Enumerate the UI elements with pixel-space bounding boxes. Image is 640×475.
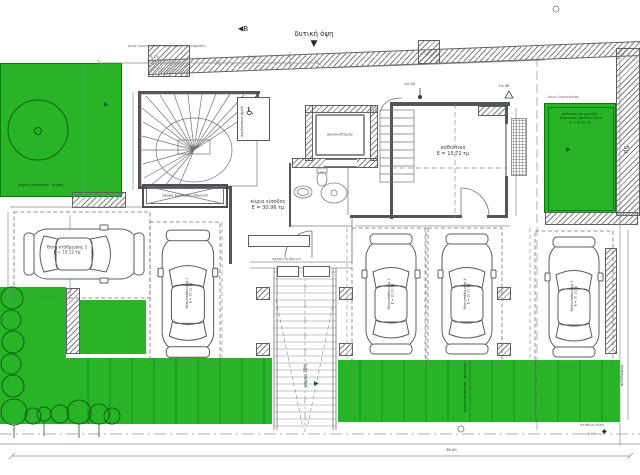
parking-space-3-area: Ε = 10.12 τμ [391, 268, 395, 320]
section-arrow-icon: ▶ [238, 25, 243, 33]
floor-plan-canvas: δυτική όψη ▼ ▶B όριο ιδιοκτησίας - υφιστ… [0, 0, 640, 475]
living-room-label: καθιστικό Ε = 15.72 τμ [415, 145, 491, 157]
planting-arrow-icon: ▶ [566, 146, 571, 153]
level-zero-label: ±0.00 [404, 82, 415, 86]
walkway-lines [250, 262, 352, 268]
top-boundary-note: όριο ιδιοκτησίας - υφιστάμενη περίφραξη [128, 44, 206, 48]
bottom-total-dim: 36.40 [446, 448, 457, 452]
right-garden-line3: Ε = 8.50 τμ [560, 121, 601, 125]
wheelchair-icon: ♿ [245, 105, 255, 118]
garden-arrow-icon: ▶ [104, 101, 109, 108]
parking-space-4-area: Ε = 10.12 τμ [467, 268, 471, 320]
entrance-label: κύρια είσοδος Ε = 30.96 τμ [230, 199, 306, 211]
ramp-drain-box-2 [303, 266, 330, 277]
drawing-linework [0, 0, 640, 475]
parking-space-1-label: Θέση στάθμευσης 1 Ε = 10.12 τμ [38, 245, 95, 255]
elevator-label: ανελκυστήρας [326, 132, 355, 136]
dim-top-2: 2.10 [248, 55, 256, 59]
right-garden-note: φύτευση με χαμηλή βλάστηση βάθους 40εκ Ε… [560, 112, 601, 125]
drain-label: σχάρα ομβρίων [272, 257, 301, 261]
street-level-value: ±0.00 [584, 432, 595, 436]
parking-space-2-label: Θέση στάθμευσης 2 Ε = 10.12 τμ [183, 251, 195, 335]
sidewalk-label: πεζοδρόμιο [618, 350, 625, 402]
living-room-area: Ε = 15.72 τμ [415, 151, 491, 157]
level-markers [418, 6, 559, 432]
level-038-label: +0.38 [498, 84, 509, 88]
dim-top-1: 4.70 [150, 55, 158, 59]
right-boundary-note: όριο ιδιοκτησίας [548, 95, 579, 99]
lift-label: αναβατόριο ΑμεΑ [240, 104, 244, 139]
entrance-area: Ε = 30.96 τμ [230, 205, 306, 211]
straight-stair [380, 98, 414, 182]
elevation-marker-icon: ▼ [300, 39, 328, 50]
green-band-divisions [88, 358, 602, 424]
elevator-door-gap [325, 159, 357, 167]
lobby-bench [248, 235, 310, 247]
parking-space-4-label: Θέση στάθμευσης 4 Ε = 10.12 τμ [461, 252, 473, 336]
section-marker: ▶B [238, 25, 248, 33]
west-elevation-label: δυτική όψη [288, 30, 340, 38]
ramp-drain-box-1 [277, 266, 299, 277]
garden-note: χώρος πρασίνου - κήπος [18, 183, 63, 187]
dim-top-3: 4.73 [420, 52, 428, 56]
street-level-note: στάθμη οδού [580, 423, 604, 427]
section-marker-letter: B [243, 25, 248, 33]
cars [24, 225, 603, 357]
parking-space-3-label: Θέση στάθμευσης 3 Ε = 10.12 τμ [385, 252, 397, 336]
setback-label: 5μ [622, 140, 629, 160]
grating-label: σχάρα φωτισμού υπογείου [162, 194, 207, 198]
parking-space-5-label: Θέση στάθμευσης 5 Ε = 10.12 τμ [568, 254, 580, 338]
band-arrow-icon: ▶ [314, 380, 319, 387]
ramp-label: ράμπα 18% [302, 336, 309, 416]
parking-space-1-area: Ε = 10.12 τμ [38, 250, 95, 255]
level-marker-icon: ◆ [602, 428, 607, 435]
parking-space-5-area: Ε = 10.12 τμ [574, 270, 578, 322]
wc-fixtures [290, 164, 352, 262]
green-band-note: χώρος πρασίνου - φύτευση [461, 343, 468, 433]
parking-space-2-area: Ε = 10.12 τμ [189, 267, 193, 319]
